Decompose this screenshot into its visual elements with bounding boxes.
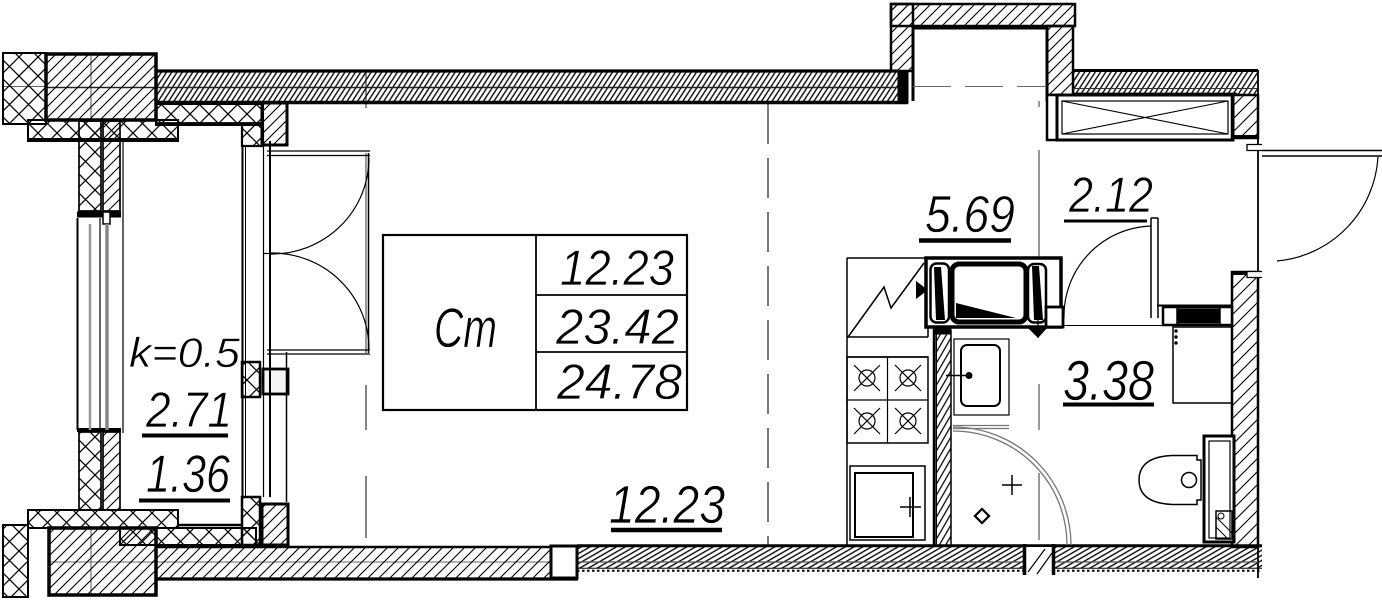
svg-text:12.23: 12.23 [560, 240, 674, 296]
svg-text:23.42: 23.42 [555, 299, 679, 355]
svg-text:5.69: 5.69 [925, 186, 1015, 244]
svg-text:24.78: 24.78 [556, 354, 682, 410]
svg-text:12.23: 12.23 [609, 475, 725, 535]
svg-text:k=0.5: k=0.5 [129, 329, 241, 376]
svg-text:Ст: Ст [434, 296, 497, 359]
svg-text:1.36: 1.36 [146, 445, 230, 504]
svg-text:2.71: 2.71 [145, 382, 232, 438]
svg-text:2.12: 2.12 [1068, 167, 1153, 223]
